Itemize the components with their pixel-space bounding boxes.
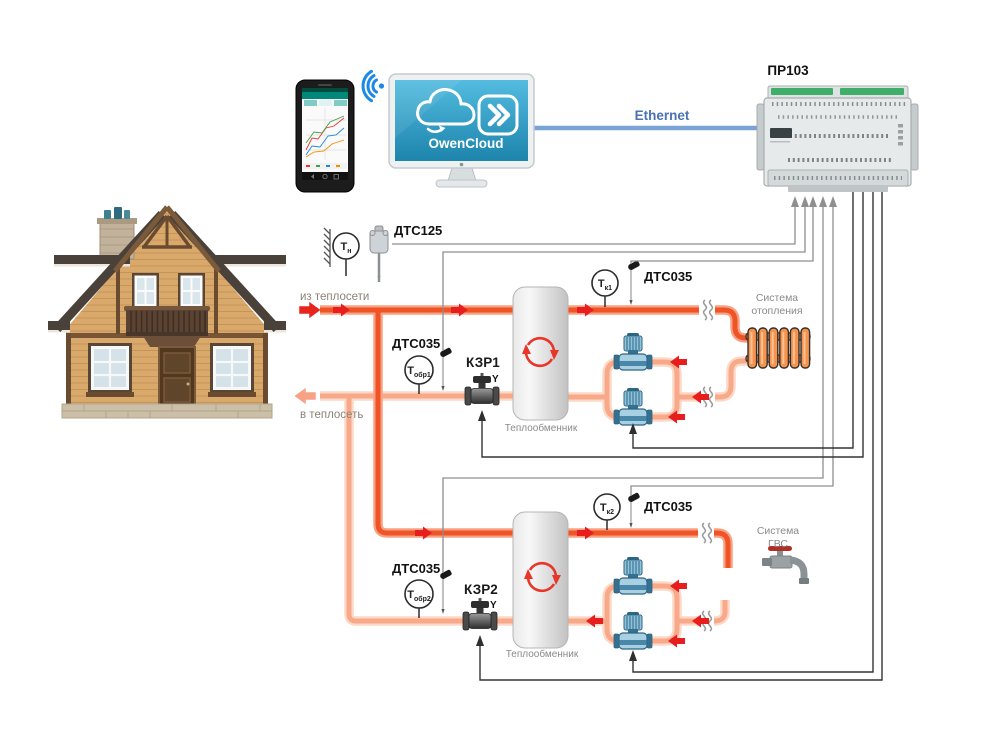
heating-automation-diagram: Ethernet OwenCloud [0, 0, 984, 750]
lower-window-left [86, 343, 134, 397]
front-door [159, 347, 195, 407]
sensor-tk1-circle [592, 270, 618, 296]
pr103-label: ПР103 [767, 63, 809, 78]
wire-tk1 [631, 207, 813, 264]
owen-logo-plate [770, 128, 792, 138]
kzr2-label: КЗР2 [464, 582, 498, 597]
heating-system-label-line1: Система [756, 292, 798, 304]
wire-tn [392, 207, 795, 244]
upper-window-right [178, 273, 205, 309]
tk1-sub: к1 [605, 285, 613, 292]
monitor-base [436, 180, 487, 187]
lower-window-right [208, 343, 256, 397]
radiator [746, 328, 810, 368]
to-network-label: в теплосеть [300, 409, 363, 421]
pipe-break [699, 300, 715, 320]
heating-system-label-line2: отопления [751, 305, 802, 317]
terminal-strip-green-right [840, 88, 904, 95]
heat-exchanger-1-label: Теплообменник [505, 422, 578, 434]
ethernet-label: Ethernet [635, 108, 690, 123]
dhw-system-label-line1: Система [757, 525, 799, 537]
door-canopy [143, 336, 201, 347]
faucet-icon [762, 546, 809, 584]
wire-pump2 [633, 192, 873, 672]
plc-pr103 [757, 86, 918, 192]
heat-exchanger-2-label: Теплообменник [506, 648, 579, 660]
smartphone [296, 80, 354, 192]
dts035-label-tk1: ДТС035 [644, 269, 692, 284]
dts035-label-tobr2: ДТС035 [392, 561, 440, 576]
sensor-input-arrows [791, 196, 837, 207]
dts035-label-tobr1: ДТС035 [392, 336, 440, 351]
monitor: OwenCloud [389, 74, 534, 187]
dts035-probe-tk2 [628, 492, 641, 502]
dts035-probe-tk1 [628, 260, 641, 270]
flow-arrows [295, 302, 710, 648]
house-illustration [48, 207, 286, 418]
dts125-label: ДТС125 [394, 223, 442, 238]
dts035-probe-tobr1 [440, 347, 453, 357]
kzr1-y-mark: Y [492, 374, 499, 385]
kzr2-y-mark: Y [490, 600, 497, 611]
wall-mount-hatch [324, 228, 330, 267]
phone-speaker [318, 84, 332, 86]
tobr2-sub: обр2 [414, 595, 431, 603]
terminal-strip-green-left [771, 88, 833, 95]
upper-window-left [132, 273, 159, 309]
kzr1-label: КЗР1 [466, 355, 500, 370]
diagram-canvas: Ethernet OwenCloud [0, 0, 984, 750]
tobr1-sub: обр1 [414, 371, 431, 379]
from-network-label: из теплосети [300, 291, 369, 303]
tk2-sub: к2 [607, 509, 615, 516]
dts035-probe-tobr2 [440, 569, 453, 579]
dts035-label-tk2: ДТС035 [644, 499, 692, 514]
pump-circuit1-top [614, 333, 652, 370]
tn-sub: н [347, 248, 351, 255]
dhw-system-label-line2: ГВС [768, 538, 788, 550]
dts125-sensor-icon [370, 226, 388, 282]
monitor-stand [448, 168, 476, 181]
heat-exchanger-1 [513, 287, 568, 420]
sensor-tk2-circle [594, 494, 620, 520]
pump-circuit1-bottom [614, 388, 652, 425]
heat-exchanger-2 [513, 512, 568, 648]
wire-pump1 [633, 192, 853, 448]
owencloud-label: OwenCloud [429, 136, 504, 151]
balcony [124, 306, 210, 336]
pipe-break [698, 523, 714, 543]
pump-circuit2-bottom [614, 612, 652, 649]
pump-circuit2-top [614, 557, 652, 594]
wifi-signal-icon [363, 71, 384, 100]
